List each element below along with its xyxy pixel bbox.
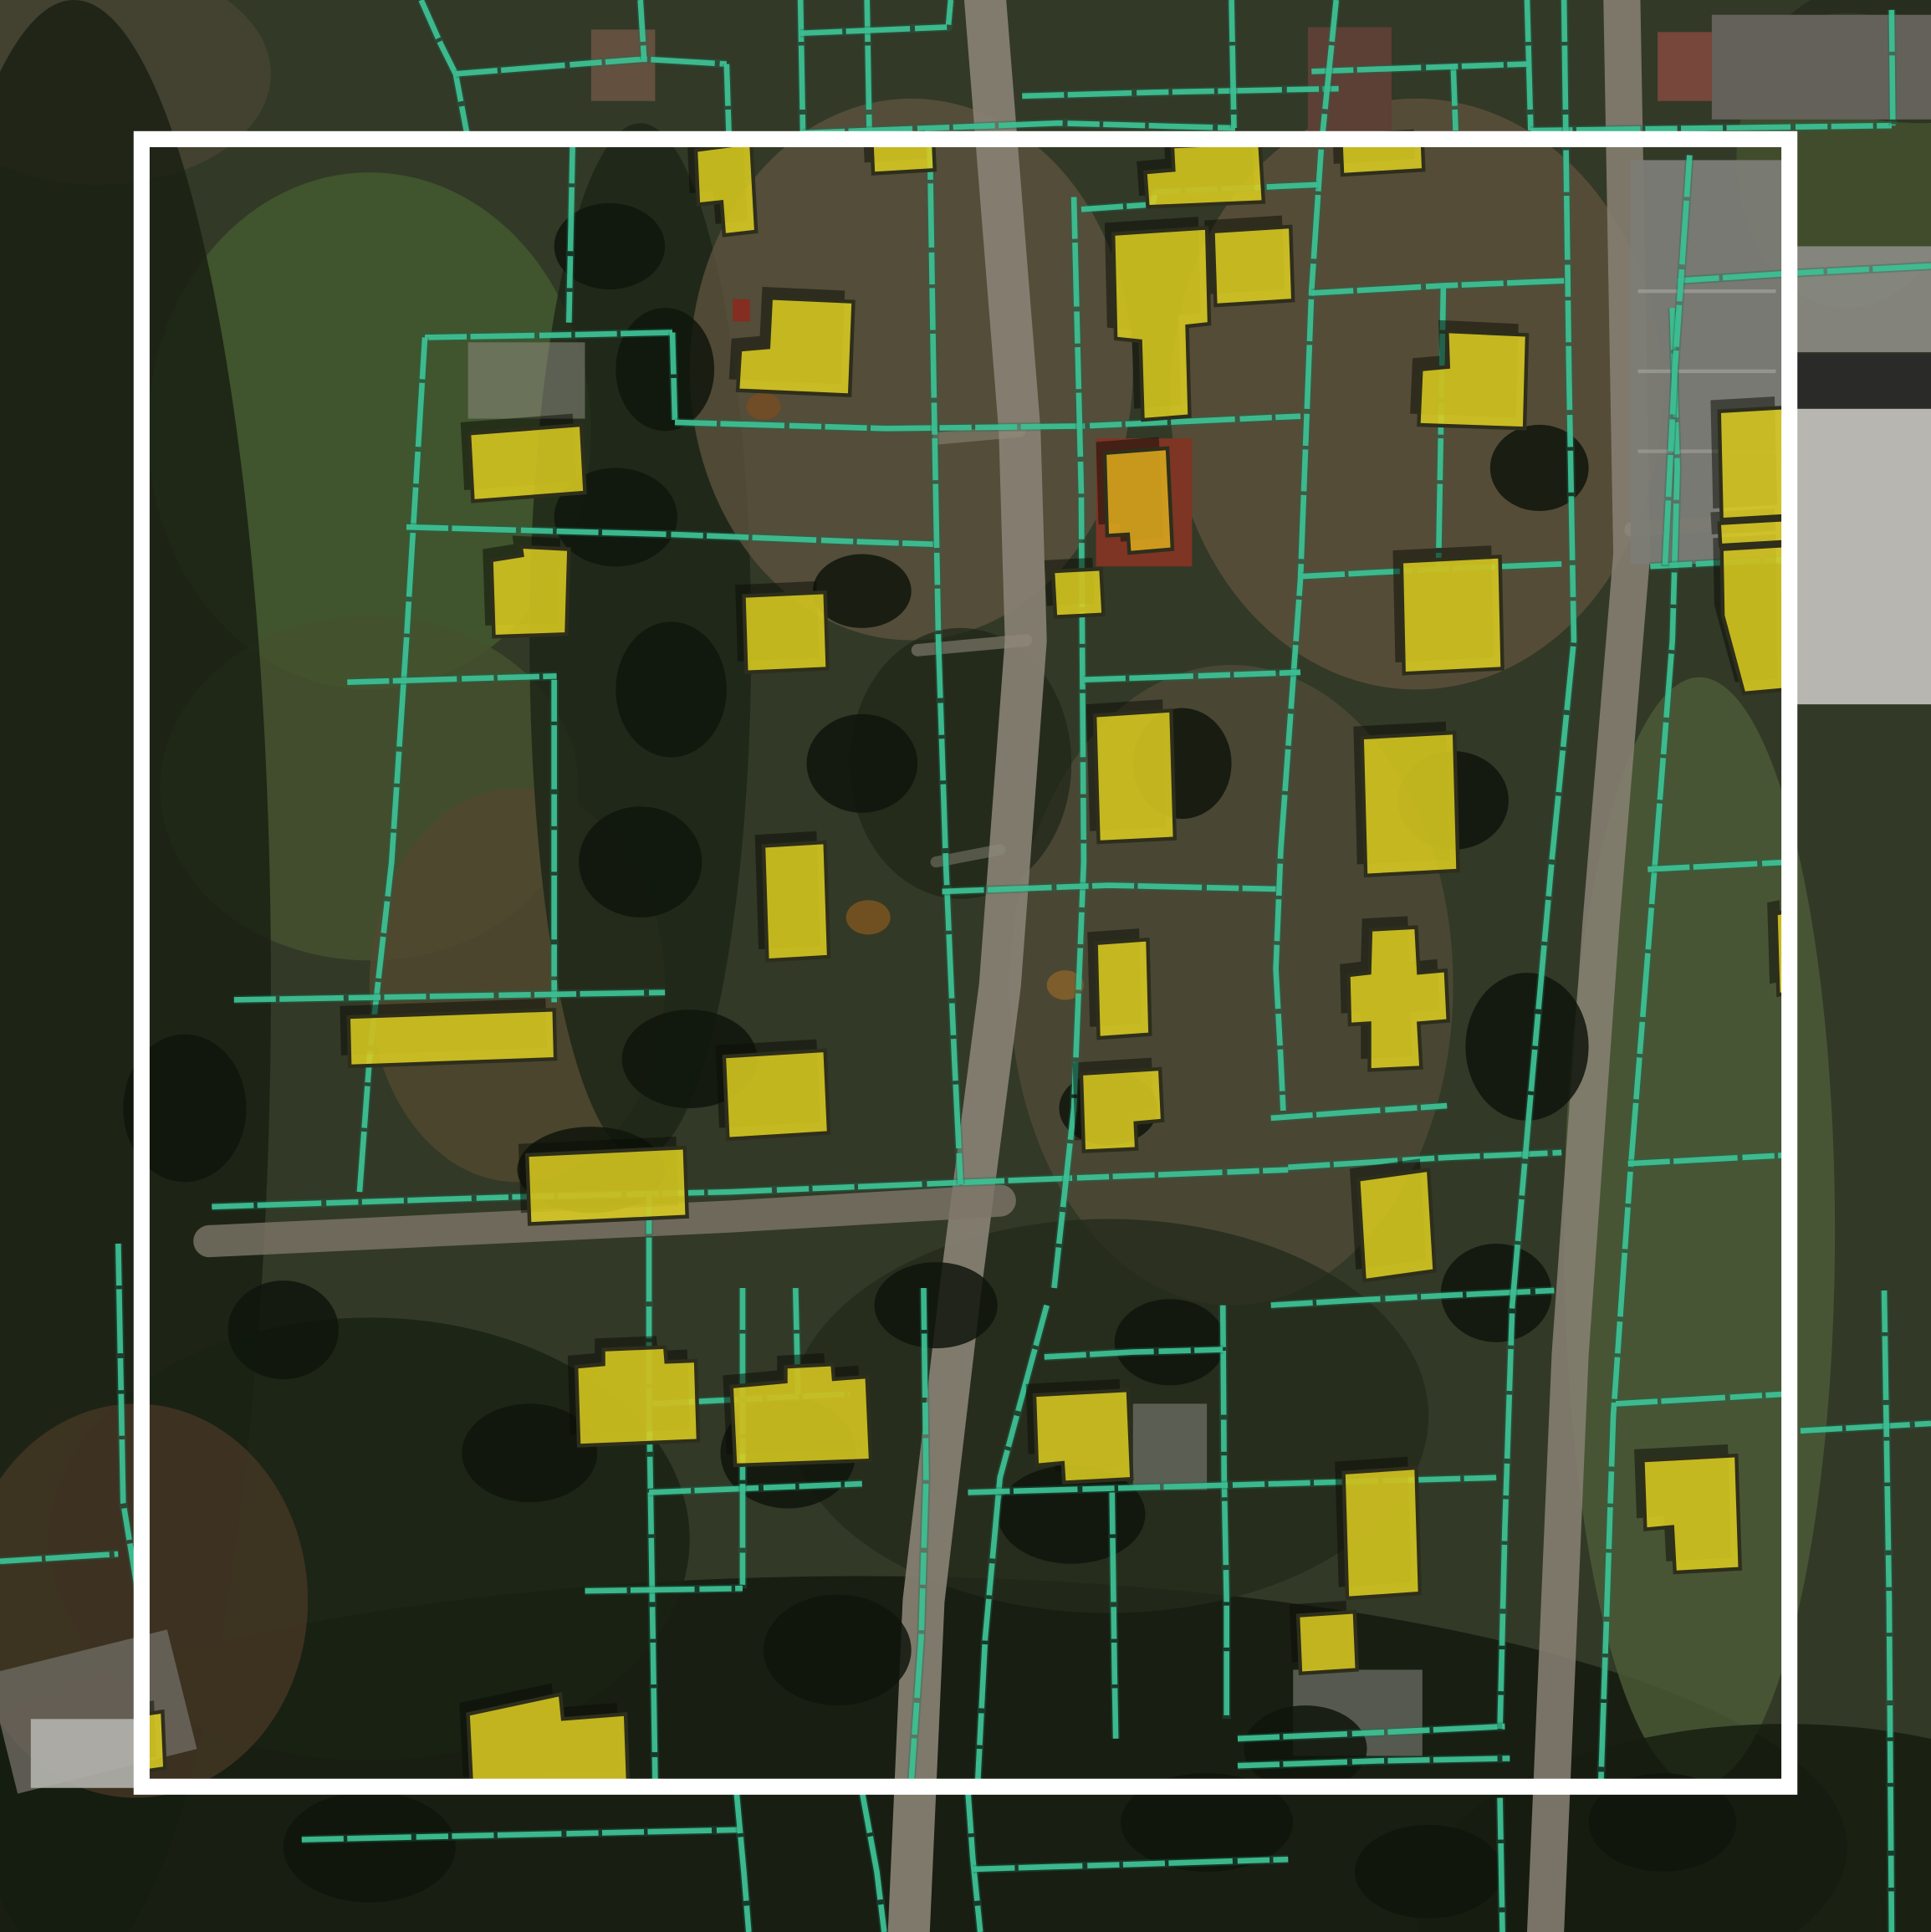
building-footprint[interactable] — [1719, 519, 1785, 545]
tree-blob — [1355, 1825, 1503, 1919]
parcel-boundary-line — [1892, 10, 1893, 125]
commercial-roof-light — [1788, 409, 1931, 704]
building-footprint[interactable] — [1402, 556, 1503, 673]
tree-blob — [764, 1595, 912, 1706]
building-footprint[interactable] — [724, 1050, 829, 1139]
parcel-boundary-line — [727, 64, 729, 140]
building-footprint[interactable] — [1358, 1170, 1434, 1281]
red-house-top-right — [1658, 32, 1712, 100]
parking-row-line-2 — [1638, 370, 1776, 373]
building-footprint[interactable] — [1719, 407, 1786, 519]
tree-blob — [616, 621, 727, 757]
parcel-boundary-line — [867, 0, 870, 139]
building-footprint[interactable] — [1095, 711, 1175, 843]
parking-lot-upper-right — [1796, 246, 1931, 352]
building-footprint[interactable] — [1362, 733, 1458, 876]
tree-blob — [875, 1262, 998, 1348]
tree-blob — [284, 1791, 456, 1903]
autumn-tree-blob — [746, 393, 780, 420]
parcel-boundary-line — [1112, 1492, 1116, 1738]
grey-drive-left — [468, 342, 585, 418]
tree-blob — [579, 806, 702, 917]
building-footprint[interactable] — [469, 425, 585, 501]
parcel-boundary-line — [1232, 0, 1234, 128]
parcel-boundary-line — [569, 141, 572, 322]
tree-blob — [1115, 1299, 1226, 1385]
autumn-tree-blob — [846, 900, 891, 934]
building-footprint[interactable] — [1053, 569, 1103, 616]
commercial-roof-dark-band — [1788, 354, 1931, 411]
parcel-boundary-line — [641, 0, 644, 59]
big-roof-top-right — [1712, 15, 1931, 120]
driveway-2 — [938, 431, 1019, 438]
tree-blob — [616, 308, 714, 431]
building-footprint[interactable] — [1298, 1612, 1357, 1674]
parking-row-line-1 — [1638, 289, 1776, 293]
building-footprint[interactable] — [1344, 1468, 1420, 1598]
map-canvas[interactable] — [0, 0, 1931, 1932]
building-footprint[interactable] — [1096, 939, 1151, 1038]
aerial-annotation-svg[interactable] — [0, 0, 1931, 1932]
driveway-near-b33 — [1133, 1403, 1207, 1490]
building-footprint[interactable] — [527, 1147, 687, 1224]
building-footprint[interactable] — [1213, 227, 1293, 305]
building-footprint[interactable] — [349, 1009, 555, 1066]
parcel-boundary-line — [1453, 64, 1456, 131]
red-bush — [733, 299, 750, 322]
tree-blob — [227, 1280, 339, 1379]
parcel-boundary-line — [800, 0, 803, 135]
parcel-boundary-line — [585, 1588, 742, 1591]
white-roofs-bottom-left — [31, 1719, 135, 1787]
building-footprint[interactable] — [743, 592, 827, 672]
tree-blob — [807, 714, 918, 813]
building-footprint[interactable] — [764, 842, 829, 960]
building-footprint[interactable] — [492, 547, 570, 636]
